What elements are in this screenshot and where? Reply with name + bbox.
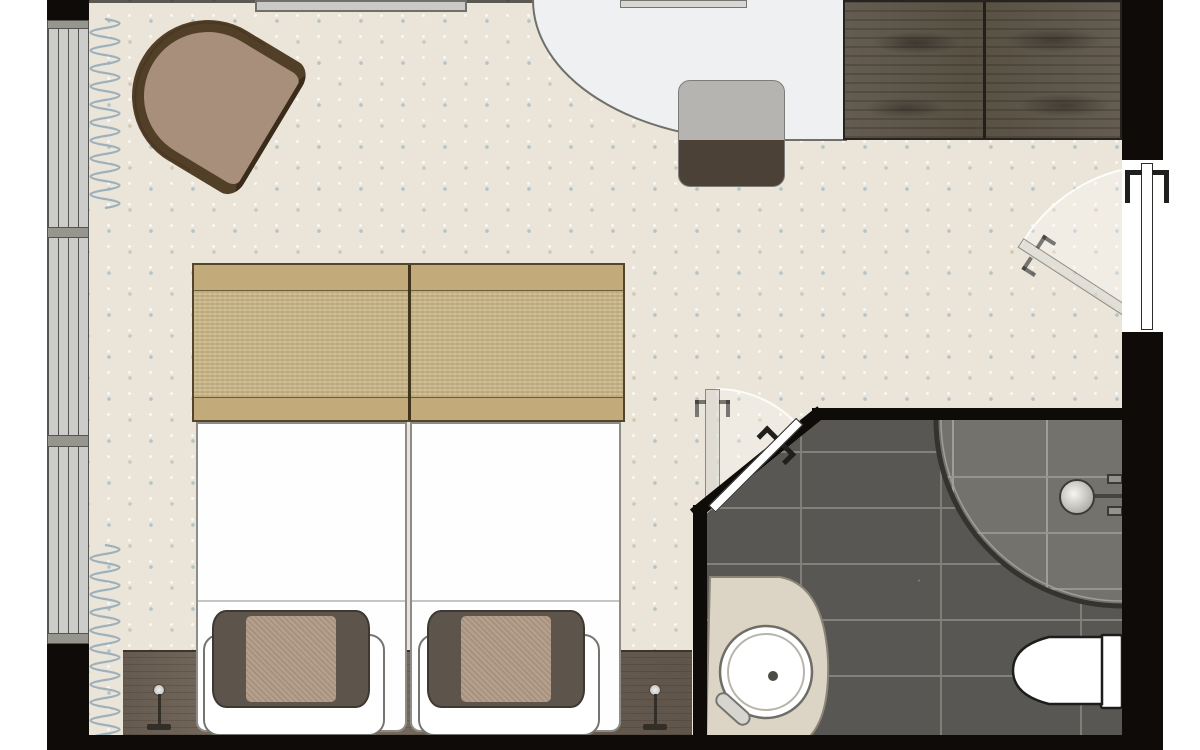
bathroom-wall-top — [812, 408, 1122, 420]
bathroom-wall-left — [693, 505, 707, 750]
reading-lamp-right — [649, 684, 661, 732]
window-transom-2 — [47, 435, 89, 447]
bathroom-door-ghost-open — [705, 389, 720, 501]
toilet — [1005, 630, 1125, 715]
wall-shelf-panel — [620, 0, 747, 8]
lamp-base — [643, 724, 667, 730]
pillow-center-panel — [246, 616, 335, 702]
window-transom-1 — [47, 227, 89, 238]
toilet-tank — [1101, 635, 1122, 708]
wall-right-lower — [1122, 330, 1163, 750]
floor-plan — [0, 0, 1200, 750]
shower-valve-bottom — [1107, 506, 1123, 516]
reading-lamp-left — [153, 684, 165, 732]
wardrobe — [843, 0, 1122, 140]
lamp-stem — [158, 694, 161, 726]
basin-drain — [768, 671, 778, 681]
window-sill — [47, 633, 89, 644]
shower-head — [1059, 479, 1095, 515]
wall-tv-panel — [255, 0, 467, 12]
decorative-pillow-right — [427, 610, 585, 708]
toilet-bowl — [1013, 637, 1102, 704]
vanity — [690, 565, 836, 750]
wall-top-left — [47, 0, 89, 20]
window-frame-top — [47, 20, 89, 29]
wall-right-upper — [1122, 0, 1163, 162]
bed-sheet-seam — [198, 600, 405, 602]
decorative-pillow-left — [212, 610, 370, 708]
bed-sheet-seam — [412, 600, 619, 602]
foot-bench-divider — [408, 265, 411, 420]
shower-valve-top — [1107, 474, 1123, 484]
foot-bench — [192, 263, 625, 422]
wardrobe-divider — [983, 2, 986, 138]
lamp-base — [147, 724, 171, 730]
pillow-center-panel — [461, 616, 550, 702]
wall-bottom — [47, 735, 1163, 750]
lamp-stem — [654, 694, 657, 726]
entry-door-leaf — [1141, 163, 1153, 330]
window-band — [47, 28, 89, 634]
desk-chair — [678, 80, 785, 187]
